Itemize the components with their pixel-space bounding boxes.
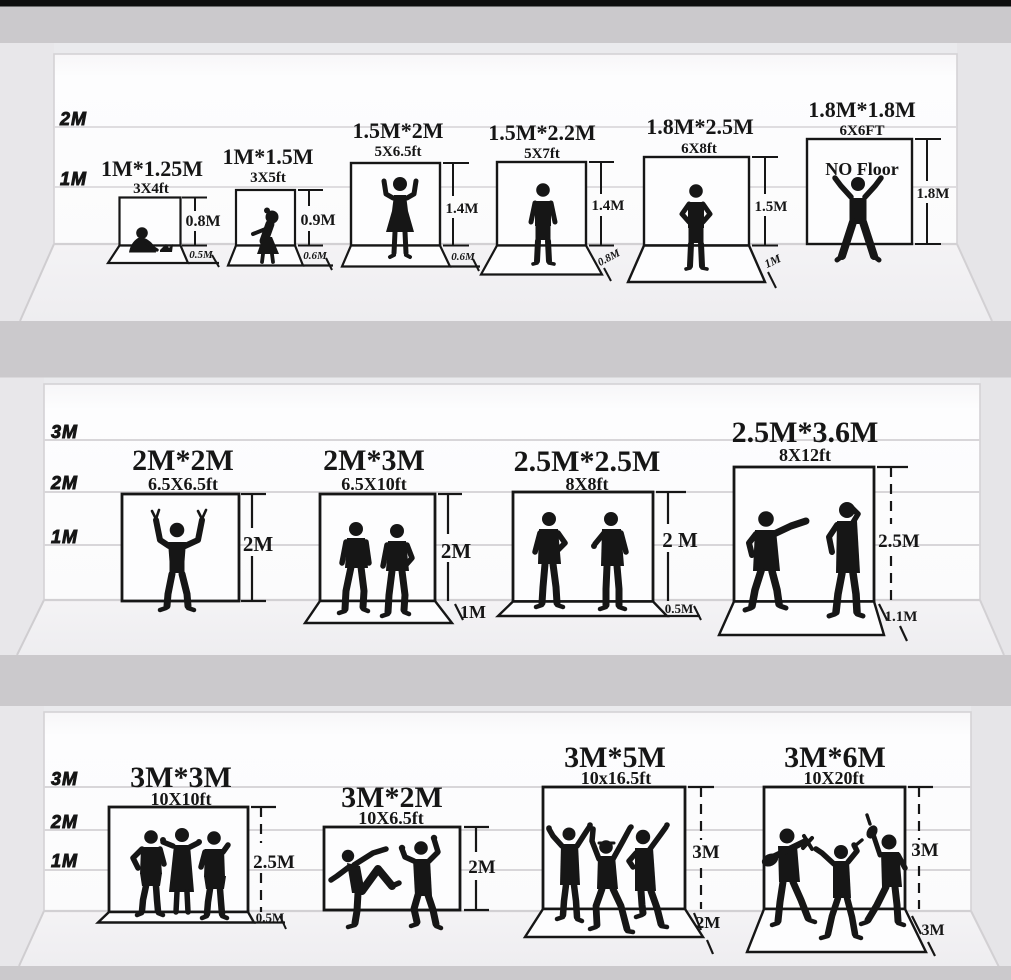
svg-text:2M: 2M bbox=[50, 473, 78, 493]
svg-text:8X12ft: 8X12ft bbox=[779, 445, 831, 465]
svg-text:1M: 1M bbox=[51, 527, 78, 547]
svg-text:6X8ft: 6X8ft bbox=[681, 141, 717, 157]
svg-text:1M*1.25M: 1M*1.25M bbox=[101, 156, 203, 181]
svg-text:6.5X6.5ft: 6.5X6.5ft bbox=[148, 474, 218, 494]
svg-text:10X6.5ft: 10X6.5ft bbox=[358, 808, 424, 828]
svg-text:3M: 3M bbox=[921, 922, 944, 939]
svg-text:6.5X10ft: 6.5X10ft bbox=[341, 474, 407, 494]
svg-text:3M: 3M bbox=[692, 842, 720, 863]
svg-text:2M: 2M bbox=[243, 532, 274, 556]
svg-text:2M: 2M bbox=[59, 109, 87, 129]
svg-text:3X4ft: 3X4ft bbox=[133, 181, 169, 197]
svg-text:3M: 3M bbox=[51, 422, 78, 442]
svg-text:0.5M: 0.5M bbox=[665, 601, 694, 616]
svg-text:1.5M*2.2M: 1.5M*2.2M bbox=[488, 120, 596, 145]
svg-text:0.6M: 0.6M bbox=[303, 250, 328, 262]
svg-text:1M: 1M bbox=[460, 602, 486, 622]
svg-text:1.4M: 1.4M bbox=[446, 201, 479, 217]
svg-text:0.5M: 0.5M bbox=[256, 910, 285, 925]
svg-text:6X6FT: 6X6FT bbox=[840, 123, 885, 139]
svg-text:1.8M: 1.8M bbox=[917, 186, 950, 202]
svg-text:1.5M*2M: 1.5M*2M bbox=[352, 118, 443, 143]
svg-text:3M: 3M bbox=[51, 769, 78, 789]
svg-text:1.5M: 1.5M bbox=[755, 199, 788, 215]
svg-text:0.5M: 0.5M bbox=[189, 249, 214, 261]
svg-text:0.6M: 0.6M bbox=[451, 251, 476, 263]
svg-text:1.8M*1.8M: 1.8M*1.8M bbox=[808, 97, 916, 122]
svg-text:2M: 2M bbox=[468, 857, 496, 878]
svg-text:2 M: 2 M bbox=[662, 528, 698, 552]
svg-text:1.1M: 1.1M bbox=[885, 609, 918, 625]
svg-text:1M: 1M bbox=[60, 169, 87, 189]
svg-text:10x16.5ft: 10x16.5ft bbox=[581, 768, 652, 788]
svg-text:2M*3M: 2M*3M bbox=[323, 444, 425, 477]
svg-text:3M: 3M bbox=[911, 840, 939, 861]
svg-text:1M*1.5M: 1M*1.5M bbox=[222, 144, 313, 169]
svg-text:0.9M: 0.9M bbox=[300, 212, 335, 229]
svg-text:2M: 2M bbox=[441, 539, 472, 563]
svg-text:2.5M: 2.5M bbox=[878, 531, 920, 552]
svg-text:5X6.5ft: 5X6.5ft bbox=[374, 144, 421, 160]
svg-text:3X5ft: 3X5ft bbox=[250, 170, 286, 186]
svg-text:10X20ft: 10X20ft bbox=[804, 768, 865, 788]
svg-text:2.5M: 2.5M bbox=[253, 852, 295, 873]
svg-text:1.8M*2.5M: 1.8M*2.5M bbox=[646, 114, 754, 139]
svg-text:5X7ft: 5X7ft bbox=[524, 146, 560, 162]
svg-text:1.4M: 1.4M bbox=[592, 198, 625, 214]
svg-text:2M: 2M bbox=[50, 812, 78, 832]
svg-text:1M: 1M bbox=[51, 851, 78, 871]
svg-text:0.8M: 0.8M bbox=[185, 213, 220, 230]
svg-text:2M: 2M bbox=[696, 913, 721, 932]
svg-text:2M*2M: 2M*2M bbox=[132, 444, 234, 477]
